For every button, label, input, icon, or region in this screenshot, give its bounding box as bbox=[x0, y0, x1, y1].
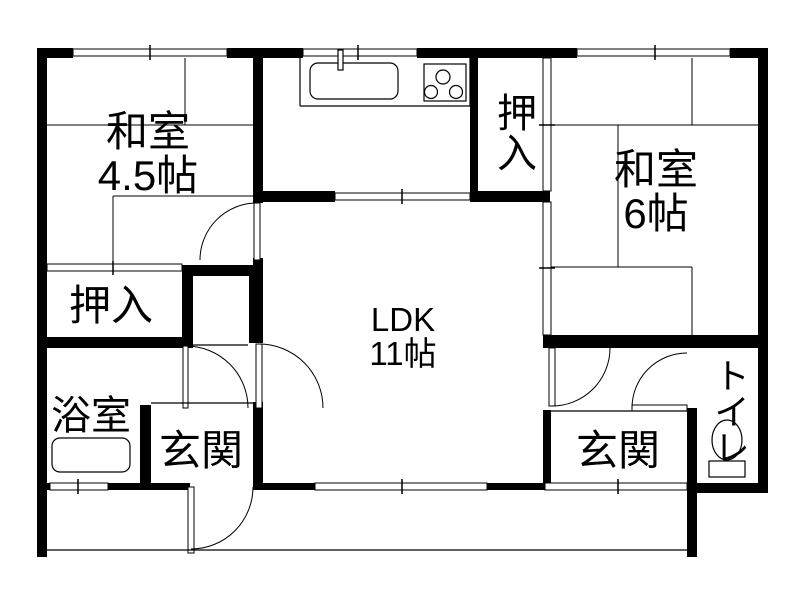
washitsu-45-name: 和室 bbox=[48, 110, 248, 154]
ldk-size: 11帖 bbox=[323, 337, 483, 371]
room-label-washitsu-6: 和室 6帖 bbox=[576, 148, 736, 235]
room-label-bathroom: 浴室 bbox=[38, 396, 144, 438]
kitchen-sink-icon bbox=[310, 50, 398, 99]
washitsu-45-size: 4.5帖 bbox=[48, 154, 248, 198]
ldk-name: LDK bbox=[323, 303, 483, 337]
room-label-washitsu-45: 和室 4.5帖 bbox=[48, 110, 248, 197]
hinged-doors bbox=[183, 203, 687, 553]
room-label-toilet: トイレ bbox=[706, 347, 748, 475]
room-label-oshiire-top: 押入 bbox=[487, 84, 533, 180]
washitsu-6-size: 6帖 bbox=[576, 192, 736, 236]
floor-plan: 和室 4.5帖 押入 和室 6帖 LDK 11帖 押入 浴室 玄関 玄関 トイレ bbox=[0, 0, 800, 600]
room-label-oshiire-left: 押入 bbox=[40, 284, 182, 328]
room-label-genkan-left: 玄関 bbox=[141, 429, 261, 473]
bathtub-icon bbox=[52, 438, 130, 472]
room-label-ldk: LDK 11帖 bbox=[323, 303, 483, 372]
room-label-genkan-right: 玄関 bbox=[558, 429, 678, 473]
gas-stove-icon bbox=[424, 64, 466, 101]
washitsu-6-name: 和室 bbox=[576, 148, 736, 192]
